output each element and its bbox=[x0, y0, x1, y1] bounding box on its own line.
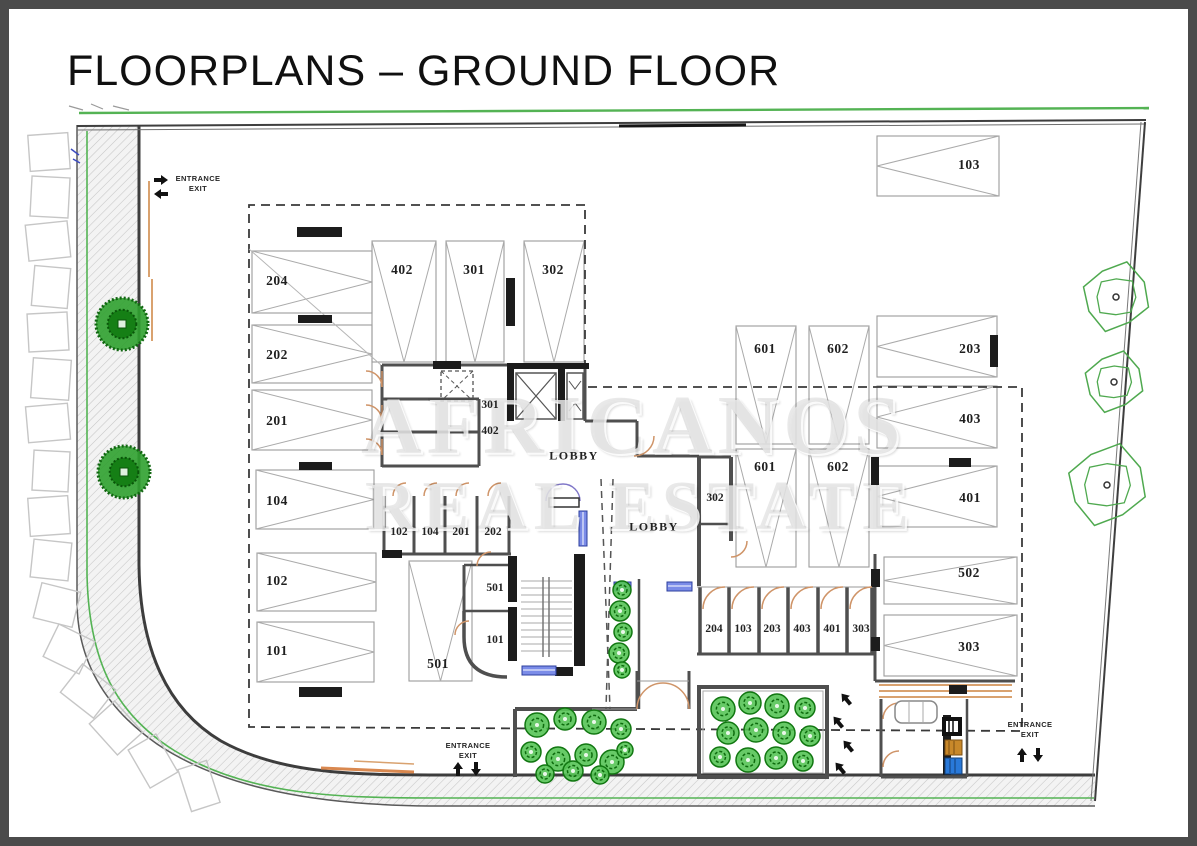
parking-space-201 bbox=[252, 390, 372, 450]
column-beam bbox=[298, 315, 332, 323]
bush-icon bbox=[710, 747, 730, 767]
utility-bins bbox=[942, 715, 962, 775]
bush-icon bbox=[795, 698, 815, 718]
bush-icon bbox=[617, 742, 633, 758]
column-beam bbox=[433, 361, 461, 369]
column-beam bbox=[299, 687, 342, 697]
column-beam bbox=[506, 278, 515, 326]
tree-outline-icon bbox=[1085, 351, 1142, 412]
column-beam bbox=[382, 550, 402, 558]
parking-space-102 bbox=[257, 553, 376, 611]
column-beam bbox=[297, 227, 342, 237]
bush-icon bbox=[773, 722, 795, 744]
parking-space-301 bbox=[446, 241, 504, 362]
watermark-line2: REAL ESTATE bbox=[365, 467, 916, 547]
bush-icon bbox=[614, 662, 630, 678]
column-beam bbox=[299, 462, 332, 470]
curb-leader-line bbox=[249, 249, 381, 365]
bush-icon bbox=[614, 623, 632, 641]
entrance-arrow-icon bbox=[1017, 748, 1027, 762]
tree-outline-icon bbox=[1069, 444, 1145, 526]
parking-space-302 bbox=[524, 241, 584, 362]
parking-space-101 bbox=[257, 622, 374, 682]
exit-arrow-icon bbox=[1033, 748, 1043, 762]
entrance-arrow-icon bbox=[154, 175, 168, 185]
tree-outline-icon bbox=[1084, 262, 1149, 332]
bush-icon bbox=[793, 751, 813, 771]
watermark-line1: AFRICANOS bbox=[361, 377, 905, 474]
bush-icon bbox=[739, 692, 761, 714]
bush-icon bbox=[521, 742, 541, 762]
bush-icon bbox=[711, 697, 735, 721]
parking-space-202 bbox=[252, 325, 372, 383]
bush-icon bbox=[613, 581, 631, 599]
bush-icon bbox=[800, 726, 820, 746]
column-beam bbox=[871, 637, 880, 651]
bush-icon bbox=[765, 694, 789, 718]
bush-icon bbox=[582, 710, 606, 734]
bush-icon bbox=[525, 713, 549, 737]
column-beam bbox=[990, 335, 998, 367]
bush-icon bbox=[536, 765, 554, 783]
parking-space-402 bbox=[372, 241, 436, 362]
ramp-direction-arrow-icon bbox=[830, 713, 847, 730]
column-beam bbox=[949, 458, 971, 467]
ramp-direction-arrow-icon bbox=[840, 737, 857, 754]
bush-icon bbox=[554, 708, 576, 730]
floorplan-page: FLOORPLANS – GROUND FLOOR bbox=[0, 0, 1197, 846]
bush-icon bbox=[736, 748, 760, 772]
bush-icon bbox=[611, 719, 631, 739]
parking-space-502 bbox=[884, 557, 1017, 604]
parking-space-203 bbox=[877, 316, 997, 377]
bush-icon bbox=[744, 718, 768, 742]
staircase bbox=[508, 554, 585, 676]
ramp-direction-arrow-icon bbox=[838, 690, 855, 707]
blue-bin-icon bbox=[945, 758, 962, 774]
parking-space-104 bbox=[256, 470, 374, 529]
tree-icon bbox=[96, 298, 148, 350]
bush-icon bbox=[609, 643, 629, 663]
bush-icon bbox=[765, 747, 787, 769]
tree-icon bbox=[98, 446, 150, 498]
bush-icon bbox=[591, 766, 609, 784]
column-beam bbox=[871, 569, 880, 587]
exit-arrow-icon bbox=[154, 189, 168, 199]
parking-space-303 bbox=[884, 615, 1017, 676]
bush-icon bbox=[717, 722, 739, 744]
bush-icon bbox=[610, 601, 630, 621]
bush-icon bbox=[563, 761, 583, 781]
parking-space-103 bbox=[877, 136, 999, 196]
